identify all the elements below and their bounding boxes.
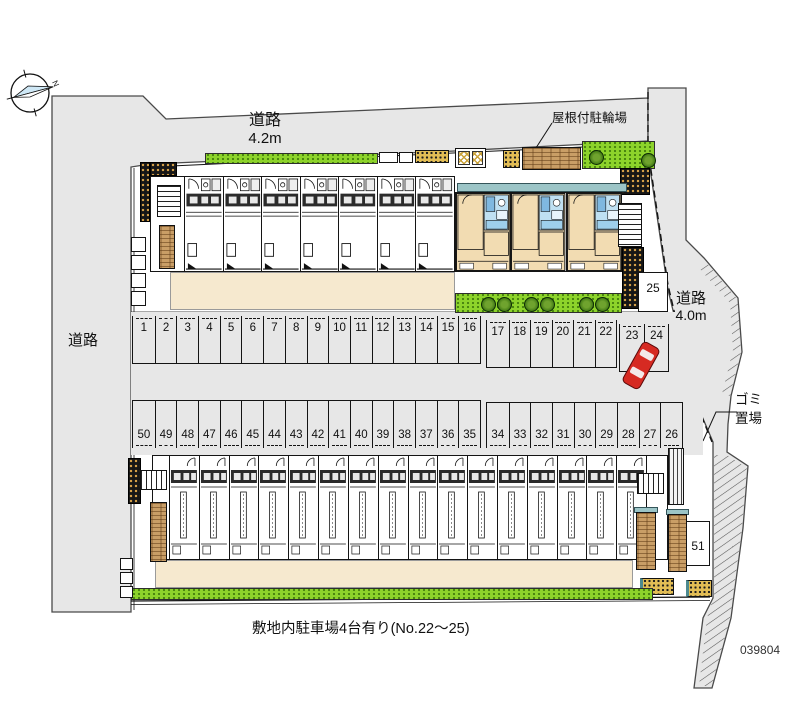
car-rear-window	[629, 366, 645, 379]
apartment-unit	[467, 456, 497, 559]
building-lower	[152, 455, 668, 560]
stall-number: 20	[553, 326, 574, 338]
parking-stall-8: 8	[285, 316, 307, 363]
apartment-unit	[408, 456, 438, 559]
apartment-unit	[527, 456, 557, 559]
stall-number: 24	[645, 330, 668, 342]
utility-box	[120, 572, 133, 584]
stall-number: 36	[438, 429, 459, 441]
stall-number: 21	[574, 326, 595, 338]
apartment-unit	[318, 456, 348, 559]
stall-number: 23	[620, 330, 644, 342]
bicycle-rack	[159, 225, 175, 269]
stall-number: 16	[459, 322, 480, 334]
apartment-unit	[497, 456, 527, 559]
road-name: 道路	[660, 290, 722, 307]
utility-box	[131, 273, 146, 288]
stall-number: 44	[264, 429, 285, 441]
stall-number: 14	[416, 322, 437, 334]
walkway-apron-upper	[170, 272, 455, 310]
road-top-label: 道路 4.2m	[232, 112, 298, 148]
parking-row-1-16: 12345678910111213141516	[132, 316, 481, 364]
parking-stall-27: 27	[639, 403, 661, 448]
road-name: 道路	[68, 332, 98, 349]
apartment-unit	[415, 177, 454, 271]
trash-line1: ゴミ	[735, 391, 762, 410]
parking-stall-38: 38	[393, 401, 415, 448]
planting-hatch	[140, 162, 150, 222]
parking-stall-28: 28	[617, 403, 639, 448]
tree-icon	[540, 297, 555, 312]
parking-stall-37: 37	[415, 401, 437, 448]
staircase	[140, 470, 167, 490]
staircase	[157, 185, 181, 217]
utility-box	[120, 558, 133, 570]
building-upper-right	[455, 192, 622, 272]
apartment-unit	[258, 456, 288, 559]
parking-stall-15: 15	[437, 316, 459, 363]
lower-units-row	[169, 456, 647, 559]
equipment-box	[503, 150, 520, 168]
apartment-unit	[170, 456, 199, 559]
parking-stall-42: 42	[307, 401, 329, 448]
apartment-unit	[586, 456, 616, 559]
stall-number: 26	[661, 429, 682, 441]
right-units-row	[456, 193, 621, 271]
parking-stall-40: 40	[350, 401, 372, 448]
utility-box	[131, 291, 146, 306]
stall-number: 33	[510, 429, 531, 441]
parking-stall-31: 31	[552, 403, 574, 448]
apartment-unit	[300, 177, 339, 271]
parking-stall-18: 18	[509, 320, 531, 367]
stall-number: 46	[221, 429, 242, 441]
parking-stall-2: 2	[155, 316, 177, 363]
road-right-label: 道路 4.0m	[660, 290, 722, 323]
stall-number: 31	[553, 429, 574, 441]
parking-stall-47: 47	[198, 401, 220, 448]
parking-stall-41: 41	[328, 401, 350, 448]
stall-number: 30	[575, 429, 596, 441]
stall-number: 18	[510, 326, 531, 338]
planting-hatch	[150, 162, 177, 176]
parking-stall-44: 44	[263, 401, 285, 448]
plan-number: 039804	[740, 643, 780, 657]
parking-stall-45: 45	[241, 401, 263, 448]
parking-stall-19: 19	[530, 320, 552, 367]
parking-stall-13: 13	[393, 316, 415, 363]
apartment-unit	[338, 177, 377, 271]
apartment-unit	[557, 456, 587, 559]
parking-stall-6: 6	[241, 316, 263, 363]
parking-row-50-35: 50494847464544434241403938373635	[132, 400, 481, 448]
parking-stall-35: 35	[458, 401, 480, 448]
apartment-unit	[229, 456, 259, 559]
stall-number: 47	[199, 429, 220, 441]
parking-stall-20: 20	[552, 320, 574, 367]
bicycle-rack	[150, 502, 167, 562]
trash-line2: 置場	[735, 410, 762, 429]
stall-number: 19	[531, 326, 552, 338]
parking-stall-50: 50	[133, 401, 155, 448]
tree-icon	[641, 153, 656, 168]
apartment-unit	[510, 193, 565, 271]
apartment-unit	[378, 456, 408, 559]
tree-icon	[579, 297, 594, 312]
utility-box	[131, 255, 146, 270]
stall-number: 48	[177, 429, 198, 441]
stall-number: 10	[329, 322, 350, 334]
apartment-unit	[185, 177, 223, 271]
road-left-label: 道路	[62, 332, 104, 349]
parking-stall-5: 5	[220, 316, 242, 363]
parking-stall-7: 7	[263, 316, 285, 363]
site-plan: N	[0, 0, 800, 727]
roof-edge	[457, 183, 627, 192]
stall-number: 15	[438, 322, 459, 334]
car-windshield	[639, 349, 655, 362]
hedge-strip-bottom	[131, 588, 653, 600]
stall-number: 39	[373, 429, 394, 441]
building-upper-left	[150, 176, 455, 272]
bicycle-shed-label: 屋根付駐輪場	[552, 107, 627, 126]
stall-number: 35	[459, 429, 480, 441]
trash-area-label: ゴミ 置場	[735, 391, 762, 429]
stall-number: 50	[133, 429, 155, 441]
stall-number: 27	[640, 429, 661, 441]
stall-number: 32	[531, 429, 552, 441]
stall-number: 9	[308, 322, 329, 334]
tree-icon	[497, 297, 512, 312]
caption: 敷地内駐車場4台有り(No.22～25)	[252, 617, 470, 638]
stall-number: 37	[416, 429, 437, 441]
apartment-unit	[288, 456, 318, 559]
covered-bicycle-shed	[522, 147, 581, 170]
parking-stall-51: 51	[686, 521, 710, 566]
parking-stall-49: 49	[155, 401, 177, 448]
parking-stall-34: 34	[487, 403, 509, 448]
stall-number: 38	[394, 429, 415, 441]
apartment-unit	[377, 177, 416, 271]
parking-stall-12: 12	[372, 316, 394, 363]
parking-stall-22: 22	[595, 320, 617, 367]
parking-stall-4: 4	[198, 316, 220, 363]
stall-number: 5	[221, 322, 242, 334]
stall-number: 3	[177, 322, 198, 334]
staircase	[618, 203, 642, 247]
utility-box	[379, 152, 398, 163]
parking-stall-1: 1	[133, 316, 155, 363]
parking-stall-3: 3	[176, 316, 198, 363]
stall-number: 43	[286, 429, 307, 441]
stall-number: 4	[199, 322, 220, 334]
utility-box	[399, 152, 413, 163]
apartment-unit	[348, 456, 378, 559]
tree-icon	[524, 297, 539, 312]
equipment-box	[686, 580, 712, 597]
stall-number: 45	[242, 429, 263, 441]
apartment-unit	[437, 456, 467, 559]
stall-number: 25	[646, 281, 659, 295]
stall-number: 51	[691, 539, 704, 553]
stall-number: 34	[487, 429, 509, 441]
parking-stall-29: 29	[595, 403, 617, 448]
parking-stall-32: 32	[530, 403, 552, 448]
bicycle-rack-box	[455, 148, 486, 168]
parking-stall-9: 9	[307, 316, 329, 363]
utility-box	[131, 237, 146, 252]
parking-stall-16: 16	[458, 316, 480, 363]
stall-number: 22	[596, 326, 617, 338]
hedge-strip-top	[205, 153, 378, 164]
stall-number: 1	[133, 322, 155, 334]
stall-number: 40	[351, 429, 372, 441]
parking-stall-30: 30	[574, 403, 596, 448]
stall-number: 7	[264, 322, 285, 334]
stall-number: 42	[308, 429, 329, 441]
tree-icon	[481, 297, 496, 312]
road-width: 4.2m	[232, 130, 298, 147]
tree-icon	[595, 297, 610, 312]
parking-stall-33: 33	[509, 403, 531, 448]
parking-stall-11: 11	[350, 316, 372, 363]
walkway-apron-lower	[155, 560, 633, 588]
stall-number: 29	[596, 429, 617, 441]
parking-stall-21: 21	[573, 320, 595, 367]
utility-box	[120, 586, 133, 598]
rack-cell	[472, 151, 484, 165]
stall-number: 8	[286, 322, 307, 334]
parking-stall-17: 17	[487, 320, 509, 367]
walkway-ramp	[668, 448, 684, 505]
stall-number: 11	[351, 322, 372, 334]
parking-stall-48: 48	[176, 401, 198, 448]
road-width: 4.0m	[660, 307, 722, 323]
stall-number: 2	[156, 322, 177, 334]
stall-number: 13	[394, 322, 415, 334]
apartment-unit	[223, 177, 262, 271]
stall-number: 6	[242, 322, 263, 334]
apartment-unit	[261, 177, 300, 271]
parking-stall-14: 14	[415, 316, 437, 363]
stall-number: 12	[373, 322, 394, 334]
tree-icon	[589, 150, 604, 165]
stall-number: 17	[487, 326, 509, 338]
parking-stall-26: 26	[660, 403, 682, 448]
apartment-unit	[566, 193, 621, 271]
rack-cell	[458, 151, 470, 165]
parking-stall-43: 43	[285, 401, 307, 448]
parking-stall-36: 36	[437, 401, 459, 448]
stall-number: 28	[618, 429, 639, 441]
stall-number: 41	[329, 429, 350, 441]
parking-stall-46: 46	[220, 401, 242, 448]
parking-row-17-22: 171819202122	[486, 320, 617, 368]
bicycle-shed	[636, 512, 656, 570]
parking-stall-39: 39	[372, 401, 394, 448]
staircase	[637, 473, 664, 494]
apartment-unit	[456, 193, 510, 271]
apartment-unit	[199, 456, 229, 559]
parking-row-34-26: 343332313029282726	[486, 402, 683, 448]
stall-number: 49	[156, 429, 177, 441]
upper-units-row	[184, 177, 454, 271]
road-name: 道路	[232, 112, 298, 130]
bicycle-shed	[668, 514, 687, 572]
equipment-box	[415, 150, 449, 163]
parking-stall-10: 10	[328, 316, 350, 363]
